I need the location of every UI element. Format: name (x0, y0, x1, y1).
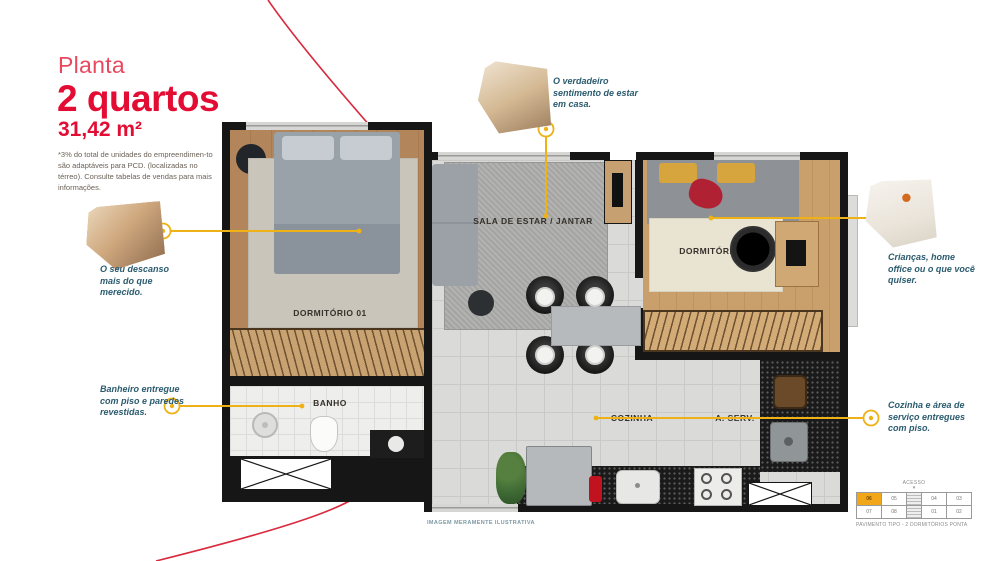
laundry-sink (773, 375, 807, 409)
image-disclaimer: IMAGEM MERAMENTE ILUSTRATIVA (427, 520, 535, 526)
keyplan-unit: 07 (857, 506, 882, 518)
keyplan-unit: 01 (922, 506, 947, 518)
plan-area: 31,42 m² (58, 118, 142, 142)
room-banho: BANHO (222, 378, 432, 502)
plant (496, 452, 526, 504)
toilet (310, 416, 338, 452)
floor-plan: DORMITÓRIO 01 BANHO (222, 120, 848, 515)
keyplan-stairs-core (907, 506, 922, 518)
stove (694, 468, 742, 506)
window (714, 152, 800, 160)
room-social-area: DORMITÓRIO 02 SALA DE ESTAR / JANTAR (424, 152, 848, 512)
plate (585, 345, 605, 365)
keyplan-unit: 02 (947, 506, 971, 518)
callout-descanso: O seu descanso mais do que merecido. (100, 264, 182, 299)
room-label-cozinha: COZINHA (582, 413, 682, 424)
fire-extinguisher (589, 476, 602, 502)
entry-door-gap (610, 152, 636, 160)
plate (585, 287, 605, 307)
shower (252, 412, 278, 438)
wall (635, 352, 840, 360)
plan-disclaimer: *3% do total de unidades do empreendimen… (58, 150, 213, 194)
fridge (526, 446, 592, 506)
callout-sentimento: O verdadeiro sentimento de estar em casa… (553, 76, 645, 111)
room-label-area-servico: A. SERV. (700, 413, 770, 424)
room-label-dormitorio-01: DORMITÓRIO 01 (250, 308, 410, 319)
plan-kicker: Planta (58, 52, 125, 79)
dining-table (551, 306, 641, 346)
plan-title: 2 quartos (57, 78, 219, 120)
keyplan-strip: 06 05 04 03 07 08 01 02 (856, 492, 972, 519)
keyplan-access-arrow-icon: ▾ (856, 486, 972, 491)
keyplan-unit: 04 (922, 493, 947, 505)
wardrobe (643, 310, 823, 352)
ventilation-shaft (748, 482, 812, 506)
keyplan-unit: 05 (882, 493, 907, 505)
room-label-sala: SALA DE ESTAR / JANTAR (468, 216, 598, 227)
desk (775, 221, 819, 287)
armchair (730, 226, 776, 272)
keyplan-caption: PAVIMENTO TIPO - 2 DORMITÓRIOS PONTA (856, 522, 972, 528)
keyplan-unit: 06 (857, 493, 882, 505)
plate (535, 345, 555, 365)
bathroom-sink (370, 430, 424, 458)
keyplan-unit: 08 (882, 506, 907, 518)
keyplan-unit: 03 (947, 493, 971, 505)
window (438, 152, 570, 160)
brochure-page: Planta 2 quartos 31,42 m² *3% do total d… (0, 0, 1000, 561)
callout-criancas: Crianças, home office ou o que você quis… (888, 252, 980, 287)
keyplan: ACESSO ▾ 06 05 04 03 07 08 01 02 PAVIMEN… (856, 481, 972, 528)
plate (535, 287, 555, 307)
coffee-table (468, 290, 494, 316)
keyplan-stairs-core (907, 493, 922, 505)
room-dormitorio-01: DORMITÓRIO 01 (222, 122, 432, 382)
kitchen-sink (616, 470, 660, 504)
callout-cozinha: Cozinha e área de serviço entregues com … (888, 400, 983, 435)
bed (647, 160, 799, 224)
callout-banheiro: Banheiro entregue com piso e paredes rev… (100, 384, 195, 419)
washing-machine (770, 422, 808, 462)
family-resting-photo (84, 201, 165, 271)
ventilation-shaft (240, 458, 332, 490)
tv-panel (604, 160, 632, 224)
room-label-banho: BANHO (280, 398, 380, 409)
bed (274, 132, 400, 274)
child-playing-photo (864, 176, 940, 250)
wardrobe (230, 328, 424, 376)
wall (635, 160, 643, 278)
window (246, 122, 368, 130)
window (432, 504, 518, 512)
